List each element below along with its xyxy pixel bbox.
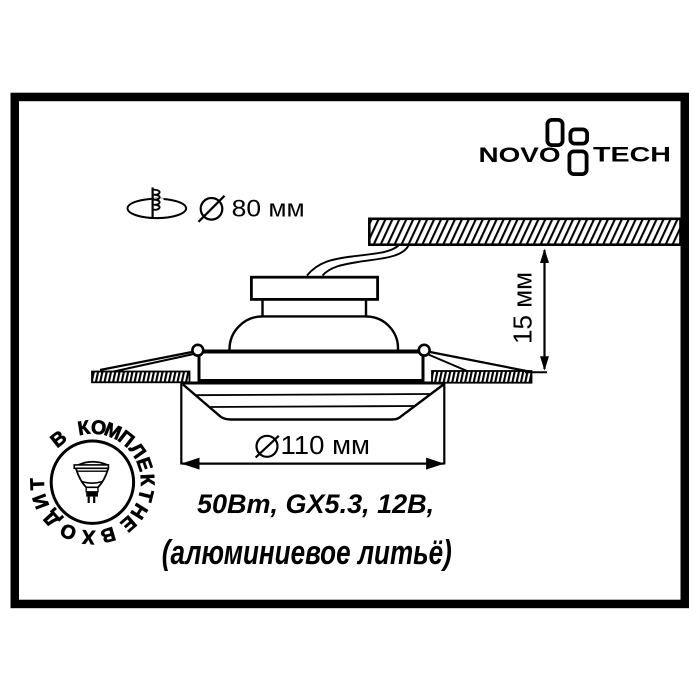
svg-text:50Вm, GX5.3, 12В,: 50Вm, GX5.3, 12В,: [197, 489, 434, 519]
svg-text:Х: Х: [81, 525, 96, 548]
svg-text:80 мм: 80 мм: [232, 196, 305, 223]
svg-text:NOVO: NOVO: [479, 144, 561, 167]
svg-text:Т: Т: [27, 478, 49, 491]
svg-text:К: К: [136, 473, 159, 486]
svg-text:110 мм: 110 мм: [281, 432, 371, 460]
svg-text:15 мм: 15 мм: [510, 272, 538, 344]
svg-text:TECH: TECH: [593, 144, 671, 167]
svg-text:(алюминиевое лиmьё): (алюминиевое лиmьё): [162, 534, 452, 572]
